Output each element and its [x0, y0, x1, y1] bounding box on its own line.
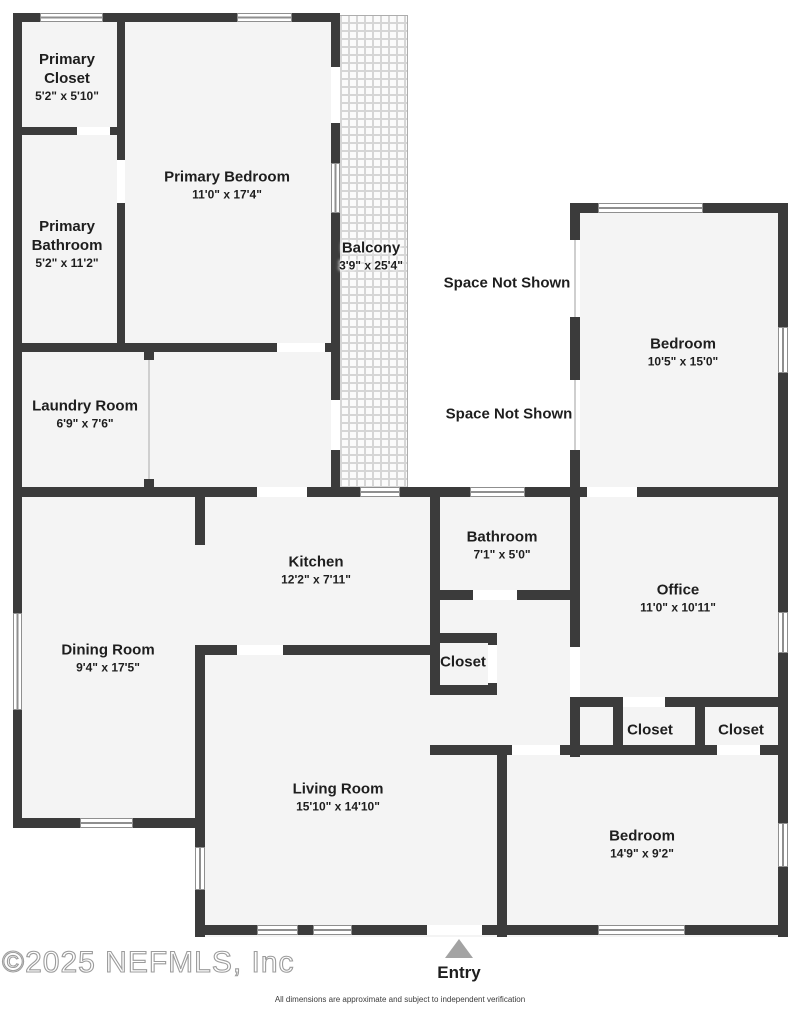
- wall-segment: [570, 203, 580, 757]
- room-name: Bedroom: [609, 827, 675, 846]
- room-name: Living Room: [293, 780, 384, 799]
- room-dimensions: 10'5" x 15'0": [648, 354, 718, 370]
- room-fill: [13, 13, 340, 352]
- window: [598, 925, 685, 935]
- door-opening: [488, 645, 497, 683]
- room-dimensions: 11'0" x 10'11": [640, 600, 716, 616]
- wall-segment: [497, 745, 507, 937]
- room-name: Dining Room: [61, 641, 154, 660]
- wall-segment: [570, 203, 788, 213]
- wall-segment: [13, 13, 340, 22]
- window: [598, 203, 703, 213]
- door-opening: [427, 925, 482, 935]
- room-label-laundry-room: Laundry Room6'9" x 7'6": [32, 397, 138, 432]
- room-dimensions: 5'2" x 5'10": [35, 88, 99, 104]
- door-opening: [587, 487, 637, 497]
- wall-segment: [13, 127, 125, 135]
- room-fill: [570, 203, 788, 757]
- labels-layer: PrimaryCloset5'2" x 5'10"Primary Bedroom…: [0, 0, 800, 1010]
- window: [470, 487, 525, 497]
- door-opening: [570, 380, 580, 450]
- wall-segment: [13, 343, 340, 352]
- wall-segment: [613, 707, 623, 755]
- window: [360, 487, 400, 497]
- wall-segment: [195, 487, 205, 545]
- room-name: Bedroom: [648, 335, 718, 354]
- room-label-primary-bedroom: Primary Bedroom11'0" x 17'4": [164, 168, 290, 203]
- window: [778, 823, 788, 867]
- room-name: Bathroom: [467, 528, 538, 547]
- room-name: Closet: [718, 721, 764, 740]
- annotation-space-not-shown-2: Space Not Shown: [446, 406, 573, 423]
- room-dimensions: 15'10" x 14'10": [293, 799, 384, 815]
- door-opening: [257, 487, 307, 497]
- room-name: Closet: [35, 69, 99, 88]
- wall-segment: [144, 479, 154, 488]
- window: [331, 163, 340, 213]
- window: [313, 925, 352, 935]
- wall-segment: [331, 13, 340, 492]
- wall-segment: [13, 487, 578, 497]
- room-name: Closet: [627, 721, 673, 740]
- room-name: Closet: [440, 653, 486, 672]
- door-opening: [331, 67, 340, 123]
- wall-segment: [13, 352, 22, 828]
- opening-line: [574, 240, 576, 317]
- wall-segment: [570, 697, 788, 707]
- wall-segment: [195, 925, 507, 935]
- wall-segment: [195, 645, 440, 655]
- room-label-primary-closet: PrimaryCloset5'2" x 5'10": [35, 50, 99, 104]
- wall-segment: [430, 590, 577, 600]
- room-dimensions: 14'9" x 9'2": [609, 846, 675, 862]
- door-opening: [77, 127, 110, 135]
- wall-segment: [570, 487, 788, 497]
- room-label-closet-1: Closet: [627, 721, 673, 740]
- door-opening: [570, 647, 580, 697]
- window: [257, 925, 298, 935]
- door-opening: [331, 400, 340, 450]
- room-name: Bathroom: [32, 236, 103, 255]
- door-opening: [717, 745, 760, 755]
- room-name: Primary: [32, 217, 103, 236]
- room-dimensions: 11'0" x 17'4": [164, 187, 290, 203]
- opening-line: [574, 380, 576, 450]
- wall-segment: [117, 13, 125, 352]
- entry-label: Entry: [437, 963, 480, 983]
- room-label-closet-hall: Closet: [440, 653, 486, 672]
- door-opening: [473, 590, 517, 600]
- wall-segment: [488, 633, 497, 695]
- balcony-layer: [0, 0, 800, 1010]
- room-dimensions: 3'9" x 25'4": [339, 258, 403, 274]
- opening-line: [148, 360, 150, 479]
- wall-segment: [195, 645, 205, 937]
- room-dimensions: 12'2" x 7'11": [281, 572, 351, 588]
- wall-segment: [695, 707, 705, 755]
- room-name: Laundry Room: [32, 397, 138, 416]
- room-fills-layer: [0, 0, 800, 1010]
- room-fill: [195, 645, 788, 937]
- door-opening: [237, 645, 283, 655]
- door-openings-layer: [0, 0, 800, 1010]
- room-label-office: Office11'0" x 10'11": [640, 581, 716, 616]
- door-opening: [117, 160, 125, 203]
- door-opening: [570, 240, 580, 317]
- room-label-primary-bathroom: PrimaryBathroom5'2" x 11'2": [32, 217, 103, 271]
- window: [13, 613, 22, 710]
- wall-segment: [430, 745, 788, 755]
- room-dimensions: 7'1" x 5'0": [467, 547, 538, 563]
- room-label-bathroom: Bathroom7'1" x 5'0": [467, 528, 538, 563]
- window: [778, 327, 788, 373]
- room-dimensions: 5'2" x 11'2": [32, 255, 103, 271]
- room-label-balcony: Balcony3'9" x 25'4": [339, 239, 403, 274]
- entry-arrow-icon: [445, 939, 473, 958]
- wall-segment: [778, 203, 788, 937]
- wall-segment: [430, 633, 497, 643]
- annotation-space-not-shown-1: Space Not Shown: [444, 275, 571, 292]
- room-label-dining-room: Dining Room9'4" x 17'5": [61, 641, 154, 676]
- room-name: Primary Bedroom: [164, 168, 290, 187]
- room-label-living-room: Living Room15'10" x 14'10": [293, 780, 384, 815]
- room-name: Kitchen: [281, 553, 351, 572]
- wall-segment: [13, 818, 205, 828]
- wall-segment: [507, 925, 788, 935]
- room-label-bedroom-bottom: Bedroom14'9" x 9'2": [609, 827, 675, 862]
- room-dimensions: 9'4" x 17'5": [61, 660, 154, 676]
- window: [40, 13, 103, 22]
- room-label-closet-2: Closet: [718, 721, 764, 740]
- door-opening: [512, 745, 560, 755]
- door-opening: [623, 697, 665, 707]
- room-name: Office: [640, 581, 716, 600]
- wall-segment: [430, 497, 440, 695]
- room-name: Primary: [35, 50, 99, 69]
- wall-segment: [144, 352, 154, 360]
- thin-lines-layer: [0, 0, 800, 1010]
- windows-layer: [0, 0, 800, 1010]
- floorplan-canvas: PrimaryCloset5'2" x 5'10"Primary Bedroom…: [0, 0, 800, 1010]
- window: [195, 847, 205, 890]
- window: [80, 818, 133, 828]
- room-label-kitchen: Kitchen12'2" x 7'11": [281, 553, 351, 588]
- wall-segment: [430, 685, 497, 695]
- walls-layer: [0, 0, 800, 1010]
- disclaimer-text: All dimensions are approximate and subje…: [275, 995, 525, 1004]
- room-fill: [13, 487, 578, 828]
- wall-segment: [13, 13, 22, 352]
- room-label-bedroom-right: Bedroom10'5" x 15'0": [648, 335, 718, 370]
- room-dimensions: 6'9" x 7'6": [32, 416, 138, 432]
- room-fill: [13, 343, 340, 497]
- balcony-deck: [332, 15, 408, 488]
- door-opening: [277, 343, 325, 352]
- window: [237, 13, 292, 22]
- copyright-watermark: ©2025 NEFMLS, Inc: [2, 946, 295, 980]
- window: [778, 612, 788, 653]
- room-name: Balcony: [339, 239, 403, 258]
